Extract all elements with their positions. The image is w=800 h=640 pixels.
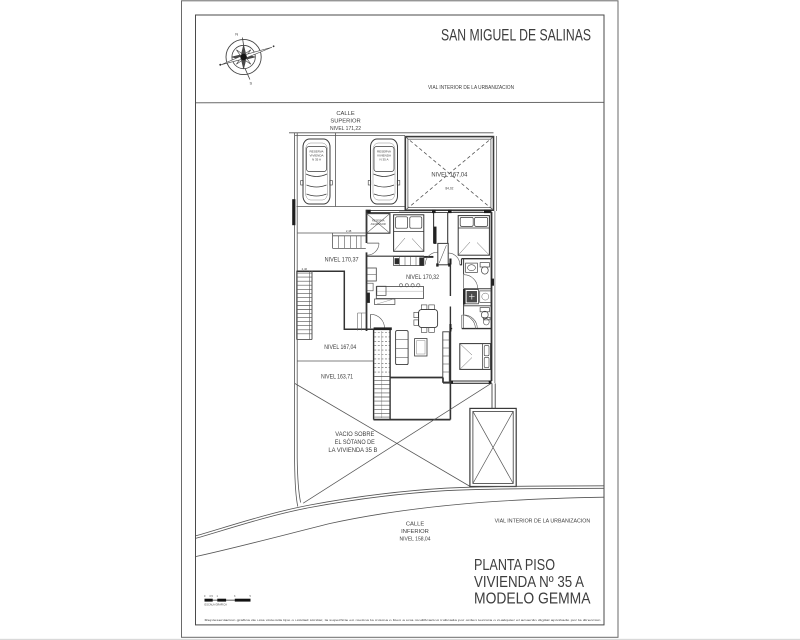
svg-text:ESCALA GRAFICA: ESCALA GRAFICA xyxy=(205,603,228,607)
svg-text:NIVEL 167,04: NIVEL 167,04 xyxy=(324,345,357,351)
svg-text:INFERIOR: INFERIOR xyxy=(401,529,429,535)
svg-text:NIVEL 171,22: NIVEL 171,22 xyxy=(330,126,361,132)
svg-text:CALLE: CALLE xyxy=(336,111,355,117)
svg-text:NIVEL 167,04: NIVEL 167,04 xyxy=(431,172,467,179)
svg-text:Representacion grafica de una: Representacion grafica de una vivienda t… xyxy=(205,618,601,622)
svg-text:VIAL INTERIOR DE LA URBANIZACI: VIAL INTERIOR DE LA URBANIZACION xyxy=(428,85,514,91)
svg-text:N: N xyxy=(235,31,238,36)
svg-text:2,46: 2,46 xyxy=(302,267,308,271)
svg-text:VIAL INTERIOR DE LA URBANIZACI: VIAL INTERIOR DE LA URBANIZACION xyxy=(495,518,591,524)
svg-text:ASCENSOR: ASCENSOR xyxy=(371,222,386,226)
svg-text:EL SÓTANO DE: EL SÓTANO DE xyxy=(335,439,375,446)
svg-text:VACIO SOBRE: VACIO SOBRE xyxy=(335,432,374,438)
svg-text:RESERVA: RESERVA xyxy=(372,219,385,223)
svg-text:NIVEL 163,71: NIVEL 163,71 xyxy=(321,375,354,381)
svg-text:MODELO GEMMA: MODELO GEMMA xyxy=(474,591,591,608)
svg-text:84,02: 84,02 xyxy=(445,187,453,191)
svg-text:LA VIVIENDA 35 B: LA VIVIENDA 35 B xyxy=(328,448,377,454)
svg-text:NIVEL 158,04: NIVEL 158,04 xyxy=(400,536,432,542)
svg-text:VIVIENDA Nº 35 A: VIVIENDA Nº 35 A xyxy=(474,574,585,591)
svg-text:NIVEL 170,32: NIVEL 170,32 xyxy=(406,274,439,281)
svg-text:SAN MIGUEL DE SALINAS: SAN MIGUEL DE SALINAS xyxy=(441,26,591,45)
svg-text:2,48: 2,48 xyxy=(346,229,352,233)
svg-text:NIVEL 170,37: NIVEL 170,37 xyxy=(325,257,360,263)
svg-text:N 35 A: N 35 A xyxy=(379,158,388,162)
svg-text:N 35 A: N 35 A xyxy=(312,158,321,162)
svg-text:SUPERIOR: SUPERIOR xyxy=(330,118,360,124)
svg-text:PLANTA PISO: PLANTA PISO xyxy=(474,557,555,574)
svg-text:S: S xyxy=(250,81,253,86)
svg-text:CALLE: CALLE xyxy=(406,521,425,527)
